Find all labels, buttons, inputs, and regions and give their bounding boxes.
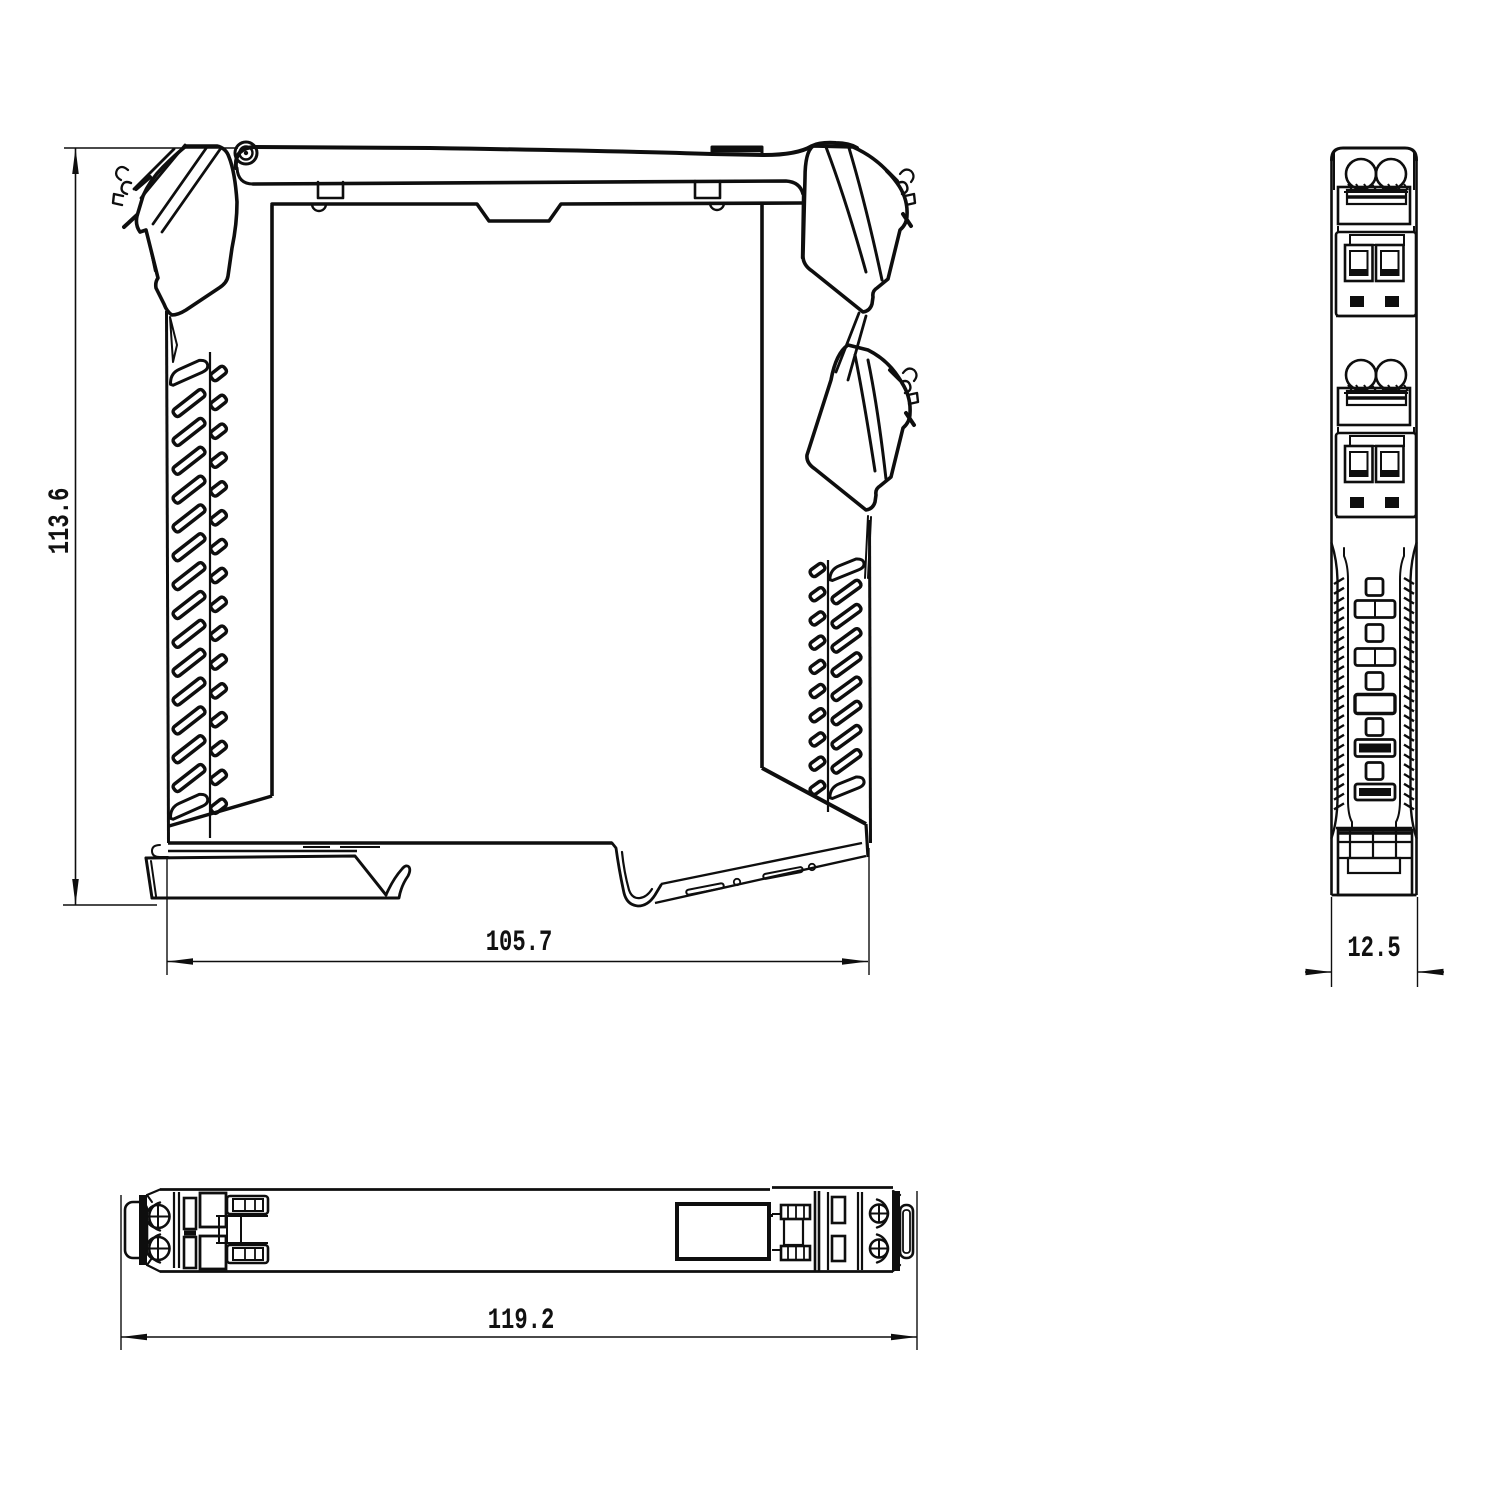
svg-text:12.5: 12.5	[1347, 931, 1400, 965]
svg-text:105.7: 105.7	[486, 925, 553, 959]
svg-text:113.6: 113.6	[43, 488, 77, 555]
svg-text:119.2: 119.2	[488, 1303, 555, 1337]
